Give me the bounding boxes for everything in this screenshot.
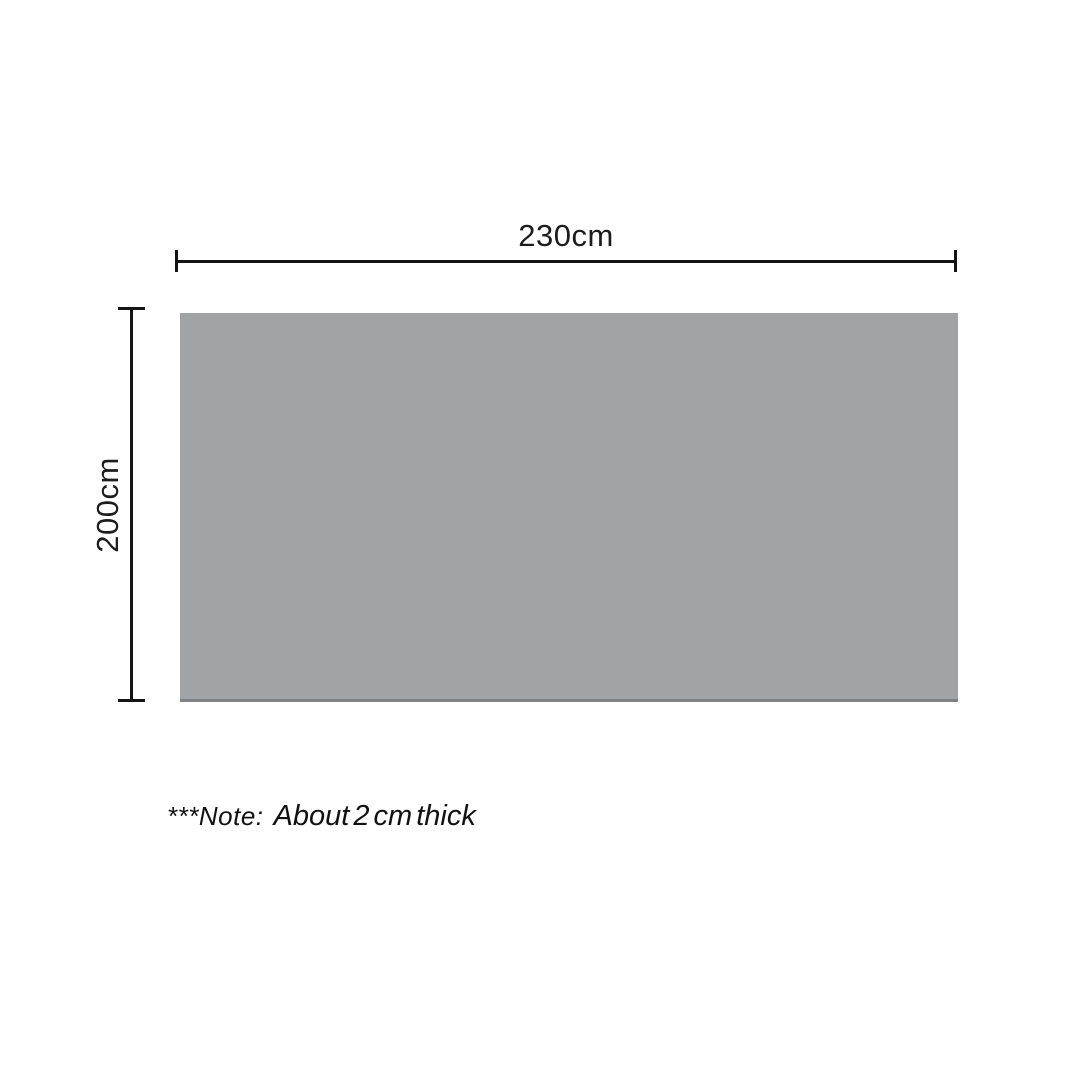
note-prefix: ***Note: <box>167 801 264 831</box>
diagram-canvas: 230cm 200cm ***Note:About 2 cm thick <box>0 0 1080 1080</box>
note-text: About 2 cm thick <box>274 800 476 832</box>
width-dimension-tick-right <box>954 250 957 272</box>
width-dimension-tick-left <box>175 250 178 272</box>
width-dimension-line <box>175 260 957 263</box>
height-dimension-label: 200cm <box>90 457 126 553</box>
product-rectangle <box>180 313 958 702</box>
height-dimension-label-wrap: 200cm <box>78 420 138 590</box>
note-line: ***Note:About 2 cm thick <box>167 800 476 833</box>
height-dimension-tick-bottom <box>118 699 145 702</box>
width-dimension-label: 230cm <box>175 218 957 254</box>
height-dimension-tick-top <box>118 307 145 310</box>
